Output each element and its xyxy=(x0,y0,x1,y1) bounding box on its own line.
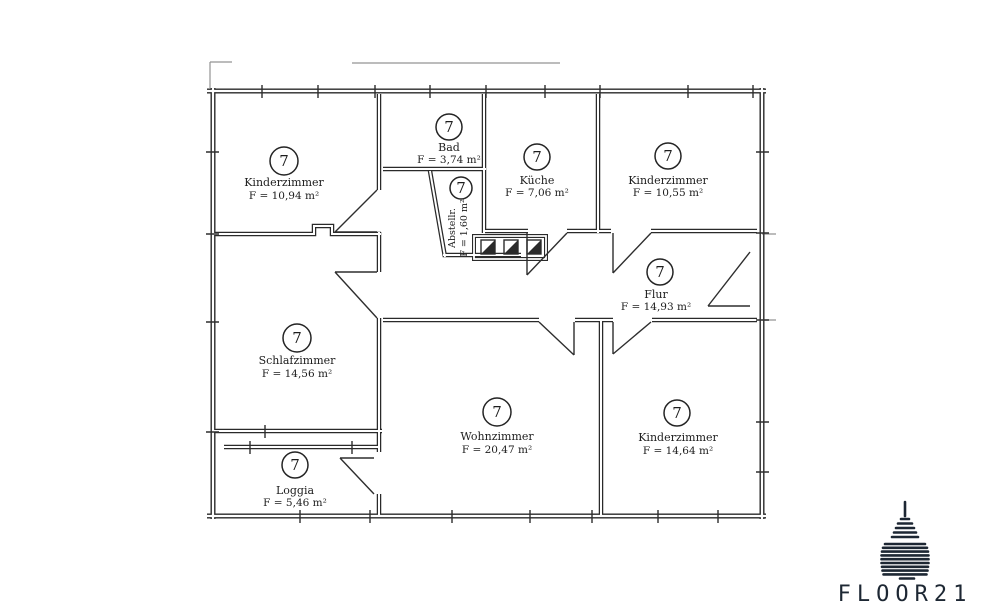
unit-number: 7 xyxy=(492,403,502,421)
room-kinderzimmer-tr: 7 Kinderzimmer F = 10,55 m² xyxy=(628,143,708,199)
room-name: Schlafzimmer xyxy=(259,354,337,367)
room-area: F = 10,55 m² xyxy=(633,187,703,199)
room-abstellraum: 7 Abstellr. F = 1,60 m² xyxy=(447,177,472,257)
floor-plan-canvas: 7 Kinderzimmer F = 10,94 m² 7 Bad F = 3,… xyxy=(0,0,1006,614)
unit-number: 7 xyxy=(456,179,466,197)
unit-number: 7 xyxy=(292,329,302,347)
room-area: F = 14,64 m² xyxy=(643,445,713,457)
room-area: F = 1,60 m² xyxy=(459,199,470,257)
room-kinderzimmer-tl: 7 Kinderzimmer F = 10,94 m² xyxy=(244,147,324,202)
room-area: F = 14,93 m² xyxy=(621,301,691,313)
unit-number: 7 xyxy=(655,263,665,281)
room-wohnzimmer: 7 Wohnzimmer F = 20,47 m² xyxy=(460,398,534,456)
room-name: Loggia xyxy=(276,484,315,497)
room-name: Flur xyxy=(644,288,668,301)
floor-plan-page: 7 Kinderzimmer F = 10,94 m² 7 Bad F = 3,… xyxy=(0,0,1006,614)
room-area: F = 10,94 m² xyxy=(249,190,319,202)
room-name: Kinderzimmer xyxy=(638,431,718,444)
room-loggia: 7 Loggia F = 5,46 m² xyxy=(263,452,327,509)
room-kinderzimmer-br: 7 Kinderzimmer F = 14,64 m² xyxy=(638,400,718,457)
room-kueche: 7 Küche F = 7,06 m² xyxy=(505,144,569,199)
floor21-tower-icon xyxy=(882,502,929,579)
room-name: Abstellr. xyxy=(447,208,458,249)
meter-box xyxy=(481,240,541,254)
room-name: Kinderzimmer xyxy=(628,174,708,187)
room-area: F = 20,47 m² xyxy=(462,444,532,456)
floor21-logo: FLOOR21 xyxy=(838,502,973,607)
room-area: F = 14,56 m² xyxy=(262,368,332,380)
room-name: Bad xyxy=(438,141,460,154)
room-name: Kinderzimmer xyxy=(244,176,324,189)
floor21-wordmark: FLOOR21 xyxy=(838,582,973,607)
room-flur: 7 Flur F = 14,93 m² xyxy=(621,259,691,313)
unit-number: 7 xyxy=(290,456,300,474)
room-bad: 7 Bad F = 3,74 m² xyxy=(417,114,481,166)
room-area: F = 7,06 m² xyxy=(505,187,569,199)
room-area: F = 5,46 m² xyxy=(263,497,327,509)
unit-number: 7 xyxy=(444,118,454,136)
unit-number: 7 xyxy=(672,404,682,422)
unit-number: 7 xyxy=(532,148,542,166)
room-schlafzimmer: 7 Schlafzimmer F = 14,56 m² xyxy=(259,324,337,380)
room-name: Wohnzimmer xyxy=(460,430,534,443)
unit-number: 7 xyxy=(279,152,289,170)
room-name: Küche xyxy=(520,174,555,187)
unit-number: 7 xyxy=(663,147,673,165)
room-area: F = 3,74 m² xyxy=(417,154,481,166)
